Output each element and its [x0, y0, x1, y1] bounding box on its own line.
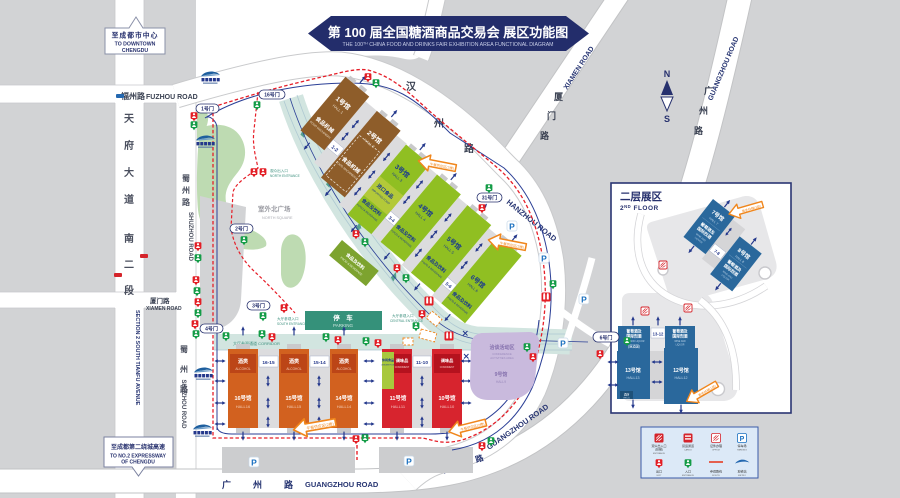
svg-text:HALL10: HALL10	[440, 404, 455, 409]
svg-text:TO DOWNTOWN: TO DOWNTOWN	[115, 42, 156, 48]
svg-text:LEISURE FOOD: LEISURE FOOD	[381, 365, 395, 367]
svg-text:酒类: 酒类	[289, 358, 299, 365]
svg-text:HALL9: HALL9	[496, 380, 506, 384]
svg-text:HALL11: HALL11	[391, 404, 406, 409]
svg-text:15号馆: 15号馆	[285, 394, 303, 402]
svg-text:观众出入口: 观众出入口	[270, 168, 288, 173]
svg-text:至成都市中心: 至成都市中心	[112, 31, 159, 40]
svg-text:ALCOHOL: ALCOHOL	[336, 367, 351, 371]
svg-text:1号门: 1号门	[201, 106, 214, 113]
svg-text:广州路: 广州路	[222, 479, 315, 490]
svg-text:N: N	[664, 69, 671, 79]
svg-text:XIAMEN ROAD: XIAMEN ROAD	[146, 306, 182, 312]
svg-text:州: 州	[433, 118, 444, 130]
svg-text:HALL15: HALL15	[287, 404, 302, 409]
svg-text:汉: 汉	[406, 80, 417, 93]
svg-text:WH1-05: WH1-05	[623, 398, 630, 400]
svg-text:葡萄酒及: 葡萄酒及	[625, 329, 641, 334]
svg-text:调味品: 调味品	[441, 357, 454, 364]
svg-text:ENTRANCE: ENTRANCE	[653, 452, 666, 455]
svg-text:OF CHENGDU: OF CHENGDU	[121, 460, 155, 466]
svg-text:大厅参观入口: 大厅参观入口	[277, 316, 299, 321]
svg-text:道: 道	[124, 193, 134, 206]
svg-text:酒类: 酒类	[238, 358, 248, 365]
svg-text:酒类: 酒类	[339, 358, 349, 365]
svg-text:CARGO: CARGO	[684, 449, 692, 452]
svg-text:大厅参观入口: 大厅参观入口	[392, 313, 414, 318]
svg-text:ALCOHOL: ALCOHOL	[286, 367, 301, 371]
svg-text:天: 天	[124, 113, 135, 125]
svg-text:货运通道: 货运通道	[682, 443, 694, 448]
svg-text:HALL12: HALL12	[675, 376, 688, 380]
svg-text:FUZHOU ROAD: FUZHOU ROAD	[146, 94, 198, 101]
svg-text:州: 州	[179, 365, 188, 374]
svg-text:GUANGZHOU ROAD: GUANGZHOU ROAD	[305, 480, 379, 489]
svg-text:蜀: 蜀	[182, 173, 190, 183]
svg-text:HALL13: HALL13	[627, 376, 640, 380]
svg-text:9号馆: 9号馆	[495, 371, 508, 378]
svg-text:ROUTE: ROUTE	[712, 475, 720, 477]
svg-text:厦: 厦	[554, 92, 564, 102]
svg-text:蜀: 蜀	[180, 344, 188, 354]
svg-text:12号馆: 12号馆	[673, 367, 689, 374]
svg-text:13号馆: 13号馆	[625, 367, 641, 374]
svg-text:路: 路	[540, 130, 550, 141]
svg-text:METRO: METRO	[738, 475, 746, 477]
svg-text:10号馆: 10号馆	[438, 394, 456, 402]
svg-text:厦门路: 厦门路	[150, 296, 170, 305]
svg-text:ACTIVITIES AREA: ACTIVITIES AREA	[490, 356, 514, 360]
svg-text:(扶梯): (扶梯)	[655, 447, 663, 452]
svg-text:门: 门	[547, 110, 556, 121]
svg-text:S: S	[664, 114, 670, 124]
svg-text:二: 二	[124, 259, 134, 271]
svg-text:SOUTH ENTRANCE: SOUTH ENTRANCE	[277, 322, 307, 326]
svg-text:洽谈活动区: 洽谈活动区	[489, 344, 514, 351]
svg-text:路: 路	[694, 125, 704, 136]
svg-text:PARKING: PARKING	[333, 323, 353, 328]
svg-text:2号门: 2号门	[235, 226, 248, 233]
svg-text:HALL14: HALL14	[337, 404, 352, 409]
svg-text:SHUZHOU ROAD: SHUZHOU ROAD	[187, 212, 193, 262]
svg-text:31号门: 31号门	[482, 195, 498, 202]
svg-text:16号门: 16号门	[264, 92, 280, 99]
svg-text:大: 大	[124, 166, 134, 179]
svg-text:出口: 出口	[656, 469, 662, 474]
svg-text:州: 州	[181, 186, 190, 195]
svg-text:NORTH SQUARE: NORTH SQUARE	[262, 216, 293, 220]
svg-text:停 车: 停 车	[333, 313, 353, 322]
svg-text:6号门: 6号门	[600, 335, 613, 342]
svg-text:州: 州	[698, 106, 708, 116]
svg-text:11号馆: 11号馆	[390, 394, 407, 402]
svg-text:P: P	[740, 436, 745, 443]
svg-text:入口: 入口	[685, 470, 691, 474]
svg-text:16-15: 16-15	[262, 360, 275, 366]
svg-text:WINE AND: WINE AND	[674, 340, 686, 343]
svg-text:ALCOHOL: ALCOHOL	[235, 367, 250, 371]
svg-text:NORTH ENTRANCE: NORTH ENTRANCE	[270, 174, 300, 178]
svg-text:13-12: 13-12	[653, 332, 664, 337]
svg-text:二层展区: 二层展区	[620, 191, 662, 203]
svg-text:酒店: 酒店	[624, 393, 630, 397]
svg-text:SHUZHOU ROAD: SHUZHOU ROAD	[180, 380, 186, 430]
svg-text:证件办理: 证件办理	[710, 443, 722, 448]
svg-text:第 100 届全国糖酒商品交易会 展区功能图: 第 100 届全国糖酒商品交易会 展区功能图	[328, 25, 569, 40]
svg-text:ENTRANCE: ENTRANCE	[682, 474, 695, 477]
svg-text:16号馆: 16号馆	[234, 394, 252, 402]
svg-text:THE 100TH CHINA FOOD AND DRINK: THE 100TH CHINA FOOD AND DRINKS FAIR EXH…	[343, 42, 554, 49]
svg-text:14号馆: 14号馆	[335, 394, 353, 402]
svg-text:调味品: 调味品	[396, 357, 409, 364]
svg-text:休闲食品: 休闲食品	[381, 357, 394, 362]
svg-text:LIQUOR: LIQUOR	[676, 345, 685, 347]
svg-text:地铁站: 地铁站	[737, 469, 746, 474]
svg-text:3号门: 3号门	[252, 303, 265, 310]
svg-text:OFFICE: OFFICE	[712, 450, 721, 452]
svg-text:SECTION 2 SOUTH TIANFU AVENUE: SECTION 2 SOUTH TIANFU AVENUE	[134, 310, 140, 406]
svg-text:参观路线: 参观路线	[710, 469, 722, 474]
svg-text:路: 路	[182, 197, 191, 207]
svg-text:HALL16: HALL16	[236, 404, 251, 409]
svg-text:国际烈酒: 国际烈酒	[672, 334, 687, 339]
svg-text:15-14: 15-14	[313, 360, 326, 366]
svg-text:4号门: 4号门	[205, 326, 218, 333]
svg-text:CONDIMENT: CONDIMENT	[440, 366, 455, 369]
svg-text:(原酒国): (原酒国)	[628, 344, 640, 349]
svg-text:11-10: 11-10	[416, 360, 428, 366]
svg-text:室外北广场: 室外北广场	[258, 204, 291, 213]
svg-text:CONDIMENT: CONDIMENT	[395, 366, 410, 369]
svg-text:停车场: 停车场	[737, 443, 746, 448]
svg-text:CHENGDU: CHENGDU	[122, 48, 148, 54]
svg-text:段: 段	[124, 284, 134, 297]
svg-text:南: 南	[124, 232, 134, 245]
svg-text:EXIT: EXIT	[657, 475, 663, 477]
svg-text:府: 府	[124, 139, 134, 152]
svg-text:至成都第二绕城高速: 至成都第二绕城高速	[111, 443, 165, 451]
svg-text:CENTRAL ENTRANCE: CENTRAL ENTRANCE	[390, 319, 423, 323]
svg-text:PARKING: PARKING	[737, 449, 747, 452]
svg-text:葡萄酒及: 葡萄酒及	[671, 329, 687, 334]
